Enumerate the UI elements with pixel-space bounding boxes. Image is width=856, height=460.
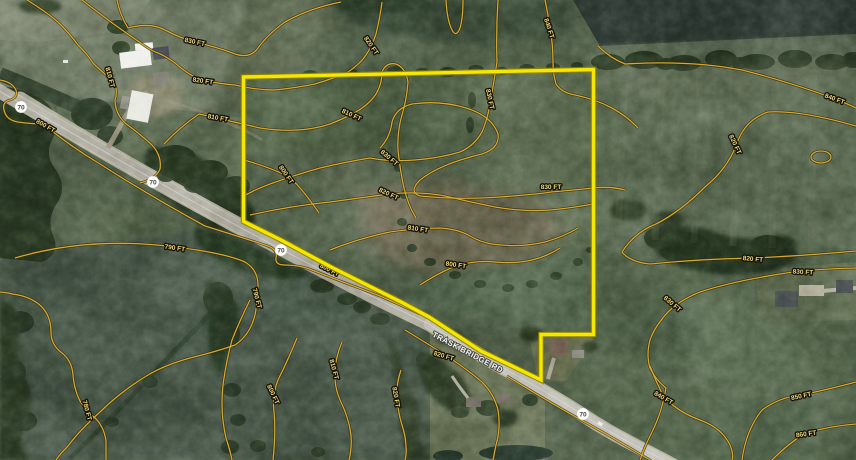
svg-text:70: 70 — [17, 104, 25, 111]
svg-text:830 FT: 830 FT — [541, 184, 562, 191]
svg-text:70: 70 — [149, 179, 157, 186]
svg-text:70: 70 — [579, 411, 587, 418]
svg-text:830 FT: 830 FT — [792, 268, 813, 276]
svg-text:70: 70 — [277, 247, 285, 254]
